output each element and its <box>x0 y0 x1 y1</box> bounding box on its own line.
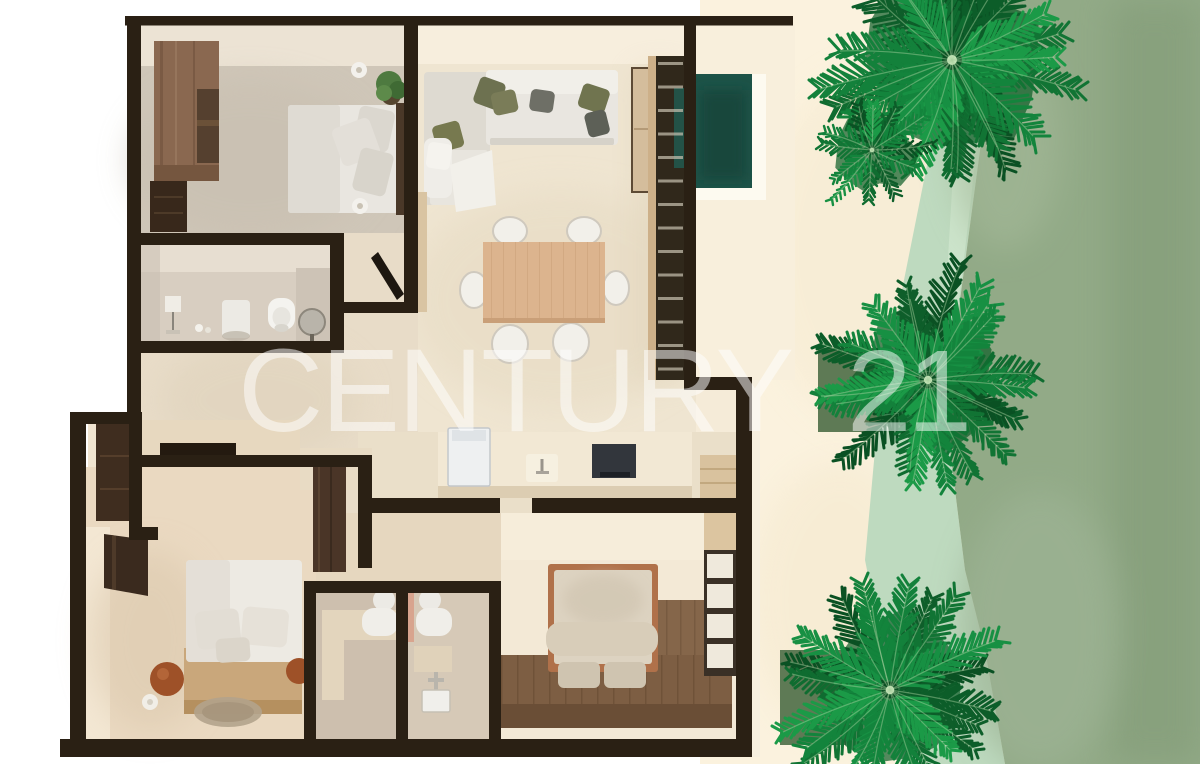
svg-text:CENTURY: CENTURY <box>238 325 793 457</box>
svg-text:21: 21 <box>847 326 968 456</box>
